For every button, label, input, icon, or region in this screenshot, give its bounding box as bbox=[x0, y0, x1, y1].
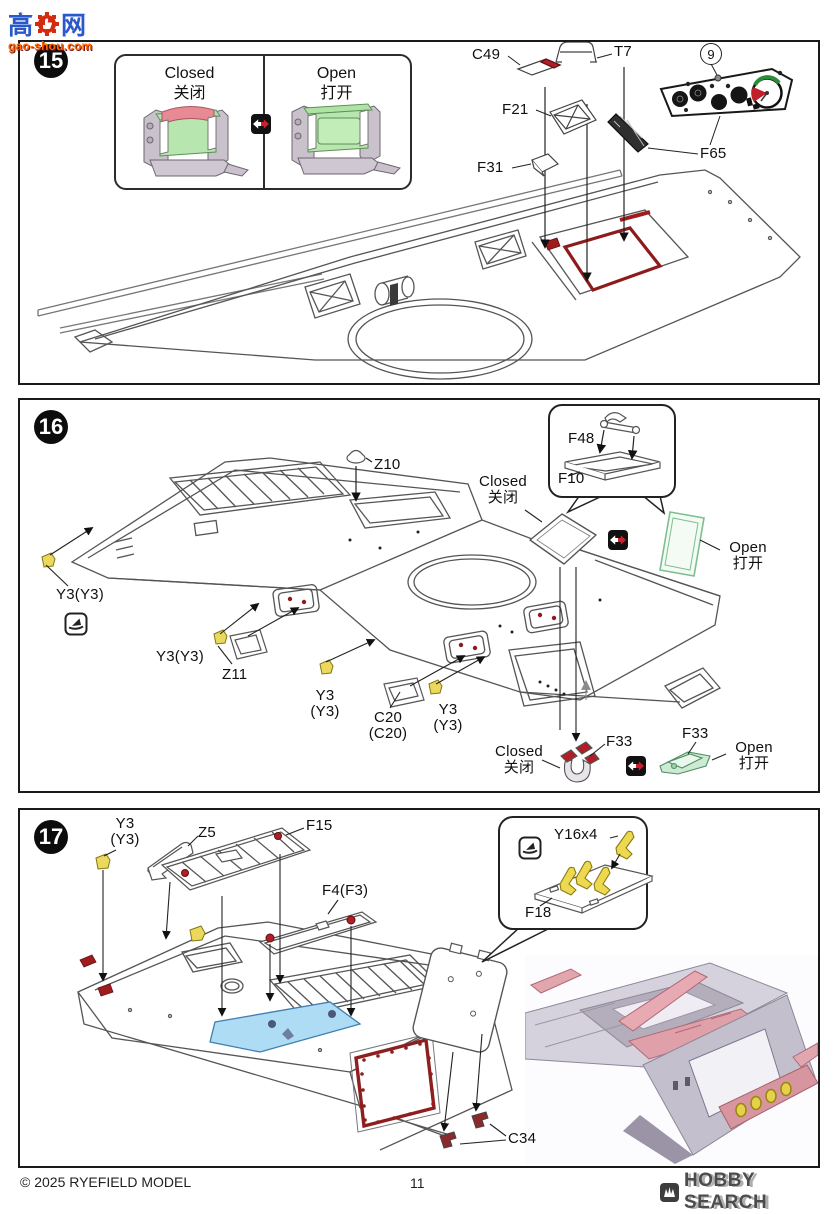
site-watermark: 高 网 gao-shou.com bbox=[8, 6, 108, 53]
f33-closed-zh: 关闭 bbox=[488, 760, 550, 776]
copyright-text: © 2025 RYEFIELD MODEL bbox=[20, 1174, 191, 1190]
open-close-arrow-icon bbox=[626, 756, 646, 776]
label-y3-left: Y3(Y3) bbox=[56, 586, 104, 603]
label-z10: Z10 bbox=[374, 456, 400, 473]
label-f31: F31 bbox=[477, 159, 503, 176]
site-watermark-char-left: 高 bbox=[8, 6, 33, 42]
label-f33-open: F33 bbox=[682, 725, 708, 742]
site-watermark-char-right: 网 bbox=[61, 6, 86, 42]
label-y3: Y3 (Y3) bbox=[102, 816, 148, 848]
step-16-number: 16 bbox=[34, 410, 68, 444]
step-17-number: 17 bbox=[34, 820, 68, 854]
label-y3-center-l2: (Y3) bbox=[303, 704, 347, 720]
label-c49: C49 bbox=[472, 46, 500, 63]
hatch-open-zh: 打开 bbox=[720, 556, 776, 572]
label-y3-right: Y3 (Y3) bbox=[426, 702, 470, 734]
label-y16x4: Y16x4 bbox=[554, 826, 598, 843]
hatch-open-caption: Open 打开 bbox=[720, 540, 776, 572]
decal-number-text: 9 bbox=[707, 47, 714, 62]
label-c20-l1: C20 bbox=[360, 710, 416, 726]
label-y3-center: Y3 (Y3) bbox=[303, 688, 347, 720]
label-y3-center-l1: Y3 bbox=[303, 688, 347, 704]
hobby-search-text: HOBBY SEARCH bbox=[684, 1170, 835, 1214]
label-z5: Z5 bbox=[198, 824, 216, 841]
label-y3-right-l2: (Y3) bbox=[426, 718, 470, 734]
inset-open-en: Open bbox=[263, 64, 410, 84]
open-close-arrow-icon bbox=[608, 530, 628, 550]
f33-open-caption: Open 打开 bbox=[726, 740, 782, 772]
inset-closed-en: Closed bbox=[116, 64, 263, 84]
glue-icon bbox=[64, 612, 88, 636]
inset-open-title: Open 打开 bbox=[263, 64, 410, 104]
label-c20: C20 (C20) bbox=[360, 710, 416, 742]
label-y3-mid: Y3(Y3) bbox=[156, 648, 204, 665]
label-y3-right-l1: Y3 bbox=[426, 702, 470, 718]
page-number: 11 bbox=[410, 1175, 425, 1191]
label-f33-closed: F33 bbox=[606, 733, 632, 750]
label-c34: C34 bbox=[508, 1130, 536, 1147]
open-close-arrow-icon bbox=[251, 114, 271, 134]
hatch-closed-zh: 关闭 bbox=[472, 490, 534, 506]
label-f15: F15 bbox=[306, 817, 332, 834]
decal-number-badge: 9 bbox=[700, 43, 722, 65]
f33-open-en: Open bbox=[726, 740, 782, 756]
hatch-open-en: Open bbox=[720, 540, 776, 556]
label-f10: F10 bbox=[558, 470, 584, 487]
glue-icon bbox=[518, 836, 542, 860]
hobby-search-logo-icon bbox=[660, 1183, 679, 1202]
label-f21: F21 bbox=[502, 101, 528, 118]
label-f4: F4(F3) bbox=[322, 882, 368, 899]
hobby-search-watermark: HOBBY SEARCH bbox=[660, 1170, 835, 1214]
label-z11: Z11 bbox=[222, 666, 247, 683]
inset-closed-zh: 关闭 bbox=[116, 84, 263, 104]
step-17-box: 17 bbox=[18, 808, 820, 1168]
hatch-closed-en: Closed bbox=[472, 474, 534, 490]
f33-closed-en: Closed bbox=[488, 744, 550, 760]
assembled-model-photo bbox=[525, 955, 818, 1164]
gear-thumb-icon bbox=[35, 12, 59, 36]
site-watermark-url: gao-shou.com bbox=[8, 39, 108, 53]
label-t7: T7 bbox=[614, 43, 632, 60]
step-16-box: 16 bbox=[18, 398, 820, 793]
f33-closed-caption: Closed 关闭 bbox=[488, 744, 550, 776]
step-17-number-text: 17 bbox=[39, 824, 63, 850]
inset-open-zh: 打开 bbox=[263, 84, 410, 104]
step-16-number-text: 16 bbox=[39, 414, 63, 440]
label-f48: F48 bbox=[568, 430, 594, 447]
inset-closed-title: Closed 关闭 bbox=[116, 64, 263, 104]
step-15-box: 15 bbox=[18, 40, 820, 385]
label-c20-l2: (C20) bbox=[360, 726, 416, 742]
label-f18: F18 bbox=[525, 904, 551, 921]
label-y3-l1: Y3 bbox=[102, 816, 148, 832]
f33-open-zh: 打开 bbox=[726, 756, 782, 772]
instruction-page: { "page": { "watermark_logo": { "char_le… bbox=[0, 0, 835, 1200]
label-y3-l2: (Y3) bbox=[102, 832, 148, 848]
label-f65: F65 bbox=[700, 145, 726, 162]
hatch-closed-caption: Closed 关闭 bbox=[472, 474, 534, 506]
